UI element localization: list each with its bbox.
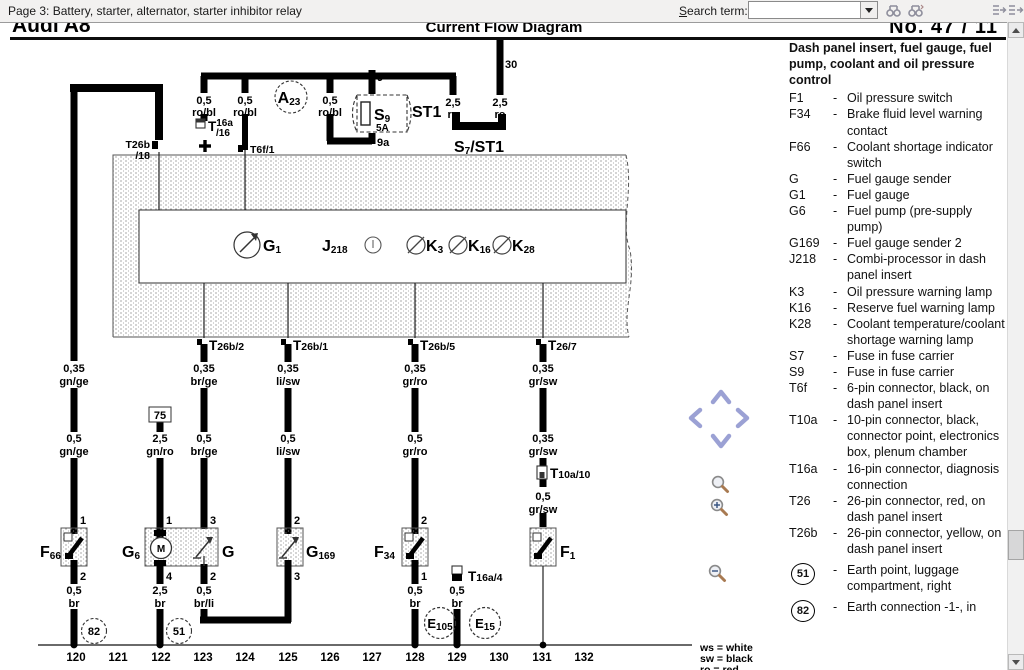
c5-size-a: 0,35 xyxy=(404,363,425,375)
svg-text:125: 125 xyxy=(278,652,298,664)
chevron-down-icon xyxy=(865,8,873,13)
g-pin3: 3 xyxy=(210,515,216,527)
c2-size: 2,5 xyxy=(152,433,167,445)
pin-30: 30 xyxy=(505,59,517,71)
c5-color-b: gr/ro xyxy=(402,446,427,458)
legend-row-s7: S7-Fuse in fuse carrier xyxy=(789,348,1005,364)
component-f66: F66 xyxy=(40,528,87,566)
svg-text:124: 124 xyxy=(235,652,255,664)
label-e15: E15 xyxy=(475,616,495,633)
c3-color-a: br/ge xyxy=(191,376,218,388)
legend-row-f66: F66-Coolant shortage indicator switch xyxy=(789,139,1005,171)
svg-text:128: 128 xyxy=(405,652,425,664)
svg-text:121: 121 xyxy=(108,652,128,664)
f66-pin1: 1 xyxy=(80,515,86,527)
legend-row-g: G-Fuel gauge sender xyxy=(789,171,1005,187)
c1-color-a: gn/ge xyxy=(59,376,88,388)
legend-row-s9: S9-Fuse in fuse carrier xyxy=(789,364,1005,380)
c2-color-c: br xyxy=(155,598,167,610)
label-f1: F1 xyxy=(560,544,576,562)
label-t16a4: T16a/4 xyxy=(468,569,503,584)
fuse-element-icon xyxy=(361,102,370,125)
c6-color-b: gr/sw xyxy=(529,446,558,458)
c6-color-a: gr/sw xyxy=(529,376,558,388)
label-t26b2: T26b/2 xyxy=(209,338,244,353)
scroll-up-button[interactable] xyxy=(1008,22,1024,38)
goto-list-entry-alt-button[interactable] xyxy=(1006,1,1024,20)
label-earth-51: 51 xyxy=(173,626,185,638)
zoom-controls xyxy=(710,477,728,581)
label-earth-82: 82 xyxy=(88,626,100,638)
legend-row-k16: K16-Reserve fuel warning lamp xyxy=(789,300,1005,316)
legend-title: Dash panel insert, fuel gauge, fuel pump… xyxy=(789,41,1005,88)
t16a16-connector: T16a/16 xyxy=(196,118,233,152)
search-term-label: Search term: xyxy=(679,4,748,18)
f66-pin2: 2 xyxy=(80,571,86,583)
wire-size-ro-1: 2,5 xyxy=(445,97,460,109)
svg-text:132: 132 xyxy=(574,652,593,664)
c6-size-a: 0,35 xyxy=(532,363,553,375)
svg-text:131: 131 xyxy=(532,652,552,664)
label-g: G xyxy=(222,544,234,561)
svg-text:122: 122 xyxy=(151,652,170,664)
label-a23: A23 xyxy=(278,90,301,108)
c4-color-a: li/sw xyxy=(276,376,300,388)
pan-right-icon[interactable] xyxy=(738,410,747,426)
c4-size-b: 0,5 xyxy=(280,433,295,445)
scroll-up-icon xyxy=(1012,28,1020,33)
pan-down-icon[interactable] xyxy=(713,436,729,446)
svg-text:130: 130 xyxy=(489,652,508,664)
svg-text:129: 129 xyxy=(447,652,466,664)
binoculars-back-icon xyxy=(907,3,924,18)
terminal-75-box: 75 xyxy=(149,407,171,422)
c1-size-c: 0,5 xyxy=(66,585,81,597)
legend-row-g6: G6-Fuel pump (pre-supply pump) xyxy=(789,203,1005,235)
zoom-cursor-icon[interactable] xyxy=(713,477,728,492)
c1-color-c: br xyxy=(69,598,81,610)
top-toolbar: Page 3: Battery, starter, alternator, st… xyxy=(0,0,1024,23)
svg-text:126: 126 xyxy=(320,652,339,664)
g-pin2: 2 xyxy=(210,571,216,583)
label-m: M xyxy=(157,544,165,555)
t26b18-connector-tick xyxy=(152,141,158,149)
combobox-dropdown-button[interactable] xyxy=(860,2,877,18)
pan-left-icon[interactable] xyxy=(691,410,700,426)
harness-wires xyxy=(160,344,543,538)
wire-color-robl-2: ro/bl xyxy=(233,107,257,119)
c6-color-c: gr/sw xyxy=(529,504,558,516)
wire-size-robl-1: 0,5 xyxy=(196,95,211,107)
g169-pin3: 3 xyxy=(294,571,300,583)
c7-size: 0,5 xyxy=(449,585,464,597)
c3-size-a: 0,35 xyxy=(193,363,214,375)
pin-9: 9 xyxy=(377,72,383,84)
pan-controls xyxy=(691,392,747,446)
find-next-button[interactable] xyxy=(884,1,903,20)
f34-pin2: 2 xyxy=(421,515,427,527)
pan-up-icon[interactable] xyxy=(713,392,729,402)
g169-pin2: 2 xyxy=(294,515,300,527)
wire-color-key: ws = white sw = black ro = red xyxy=(699,642,753,670)
label-t26b1: T26b/1 xyxy=(293,338,328,353)
c5-size-b: 0,5 xyxy=(407,433,422,445)
wire-size-ro-2: 2,5 xyxy=(492,97,507,109)
header-rule xyxy=(10,37,1006,40)
c5-color-c: br xyxy=(410,598,422,610)
earth-51-circle: 51 xyxy=(791,563,815,585)
label-t16a16: T16a/16 xyxy=(208,118,233,139)
wire-size-robl-3: 0,5 xyxy=(322,95,337,107)
component-legend-panel: Dash panel insert, fuel gauge, fuel pump… xyxy=(789,41,1005,625)
label-e105: E105 xyxy=(427,616,453,633)
legend-row-g1: G1-Fuel gauge xyxy=(789,187,1005,203)
zoom-out-icon[interactable] xyxy=(710,566,725,581)
scroll-down-icon xyxy=(1012,660,1020,665)
label-s7-st1: S7/ST1 xyxy=(454,139,504,157)
f34-pin1: 1 xyxy=(421,571,427,583)
legend-row-t6f: T6f-6-pin connector, black, on dash pane… xyxy=(789,380,1005,412)
label-t26b5: T26b/5 xyxy=(420,338,455,353)
svg-text:ro = red: ro = red xyxy=(700,664,739,670)
legend-row-j218: J218-Combi-processor in dash panel inser… xyxy=(789,251,1005,283)
track-numbers: 120 121 122 123 124 125 126 127 128 129 … xyxy=(66,652,593,664)
c3-color-c: br/li xyxy=(194,598,214,610)
label-t10a10: T10a/10 xyxy=(550,466,591,481)
c3-size-c: 0,5 xyxy=(196,585,211,597)
label-s9-amps: 5A xyxy=(376,123,389,134)
g6-pin1: 1 xyxy=(166,515,172,527)
t6f1-connector-tick xyxy=(238,145,243,152)
label-f34: F34 xyxy=(374,544,395,562)
label-t6f1: T6f/1 xyxy=(250,144,275,156)
legend-row-earth-51: 51-Earth point, luggage compartment, rig… xyxy=(789,562,1005,594)
pin-9a: 9a xyxy=(377,137,390,149)
legend-row-t10a: T10a-10-pin connector, black, connector … xyxy=(789,412,1005,460)
label-75: 75 xyxy=(154,410,166,422)
g6-pin4: 4 xyxy=(166,571,173,583)
scrollbar-thumb[interactable] xyxy=(1008,530,1024,560)
c3-color-b: br/ge xyxy=(191,446,218,458)
c2-color: gn/ro xyxy=(146,446,174,458)
legend-row-k3: K3-Oil pressure warning lamp xyxy=(789,284,1005,300)
c4-size-a: 0,35 xyxy=(277,363,298,375)
svg-text:120: 120 xyxy=(66,652,85,664)
component-f1: F1 xyxy=(530,528,576,566)
svg-text:123: 123 xyxy=(193,652,212,664)
legend-row-t16a: T16a-16-pin connector, diagnosis connect… xyxy=(789,461,1005,493)
c7-color: br xyxy=(452,598,464,610)
legend-row-k28: K28-Coolant temperature/coolant shortage… xyxy=(789,316,1005,348)
list-arrow-icon xyxy=(991,3,1008,18)
list-arrow-alt-icon xyxy=(1007,3,1024,18)
c5-color-a: gr/ro xyxy=(402,376,427,388)
scroll-down-button[interactable] xyxy=(1008,654,1024,670)
c2-size-c: 2,5 xyxy=(152,585,167,597)
label-f66: F66 xyxy=(40,544,61,562)
label-t26b18-bot: /18 xyxy=(135,150,150,162)
c1-color-b: gn/ge xyxy=(59,446,88,458)
legend-row-t26: T26-26-pin connector, red, on dash panel… xyxy=(789,493,1005,525)
wire-color-robl-3: ro/bl xyxy=(318,107,342,119)
legend-row-earth-82: 82-Earth connection -1-, in xyxy=(789,599,1005,625)
c5-size-c: 0,5 xyxy=(407,585,422,597)
c1-size-b: 0,5 xyxy=(66,433,81,445)
earth-wires xyxy=(74,560,457,646)
component-g6-g: M G6 G xyxy=(122,528,234,566)
legend-row-f1: F1-Oil pressure switch xyxy=(789,90,1005,106)
c6-size-c: 0,5 xyxy=(535,491,550,503)
wire-size-robl-2: 0,5 xyxy=(237,95,252,107)
page-info-text: Page 3: Battery, starter, alternator, st… xyxy=(8,4,302,18)
label-st1: ST1 xyxy=(412,104,441,121)
vertical-scrollbar[interactable] xyxy=(1007,22,1024,670)
label-g6: G6 xyxy=(122,544,140,562)
wire-color-robl-1: ro/bl xyxy=(192,107,216,119)
elsa-current-flow-diagram-window: { "toolbar": { "page_info": "Page 3: Bat… xyxy=(0,0,1024,670)
component-f34: F34 xyxy=(374,528,428,566)
fuse-s9: S9 5A xyxy=(353,95,412,134)
label-g169: G169 xyxy=(306,544,336,562)
search-term-combobox[interactable] xyxy=(748,1,878,19)
a23-reference: A23 xyxy=(275,81,307,113)
binoculars-icon xyxy=(885,3,902,18)
c6-size-b: 0,35 xyxy=(532,433,553,445)
legend-row-f34: F34-Brake fluid level warning contact xyxy=(789,106,1005,138)
legend-row-g169: G169-Fuel gauge sender 2 xyxy=(789,235,1005,251)
find-previous-button[interactable] xyxy=(906,1,925,20)
earth-82-circle: 82 xyxy=(791,600,815,622)
t10a10-connector: T10a/10 xyxy=(537,466,591,481)
zoom-in-icon[interactable] xyxy=(712,500,727,515)
svg-text:127: 127 xyxy=(362,652,381,664)
t16a4-connector: T16a/4 xyxy=(452,566,503,584)
c4-color-b: li/sw xyxy=(276,446,300,458)
box-bottom-connectors: T26b/2 T26b/1 T26b/5 T26/7 xyxy=(197,338,577,353)
label-t267: T26/7 xyxy=(548,338,577,353)
c3-size-b: 0,5 xyxy=(196,433,211,445)
legend-row-t26b: T26b-26-pin connector, yellow, on dash p… xyxy=(789,525,1005,557)
c1-size-a: 0,35 xyxy=(63,363,84,375)
